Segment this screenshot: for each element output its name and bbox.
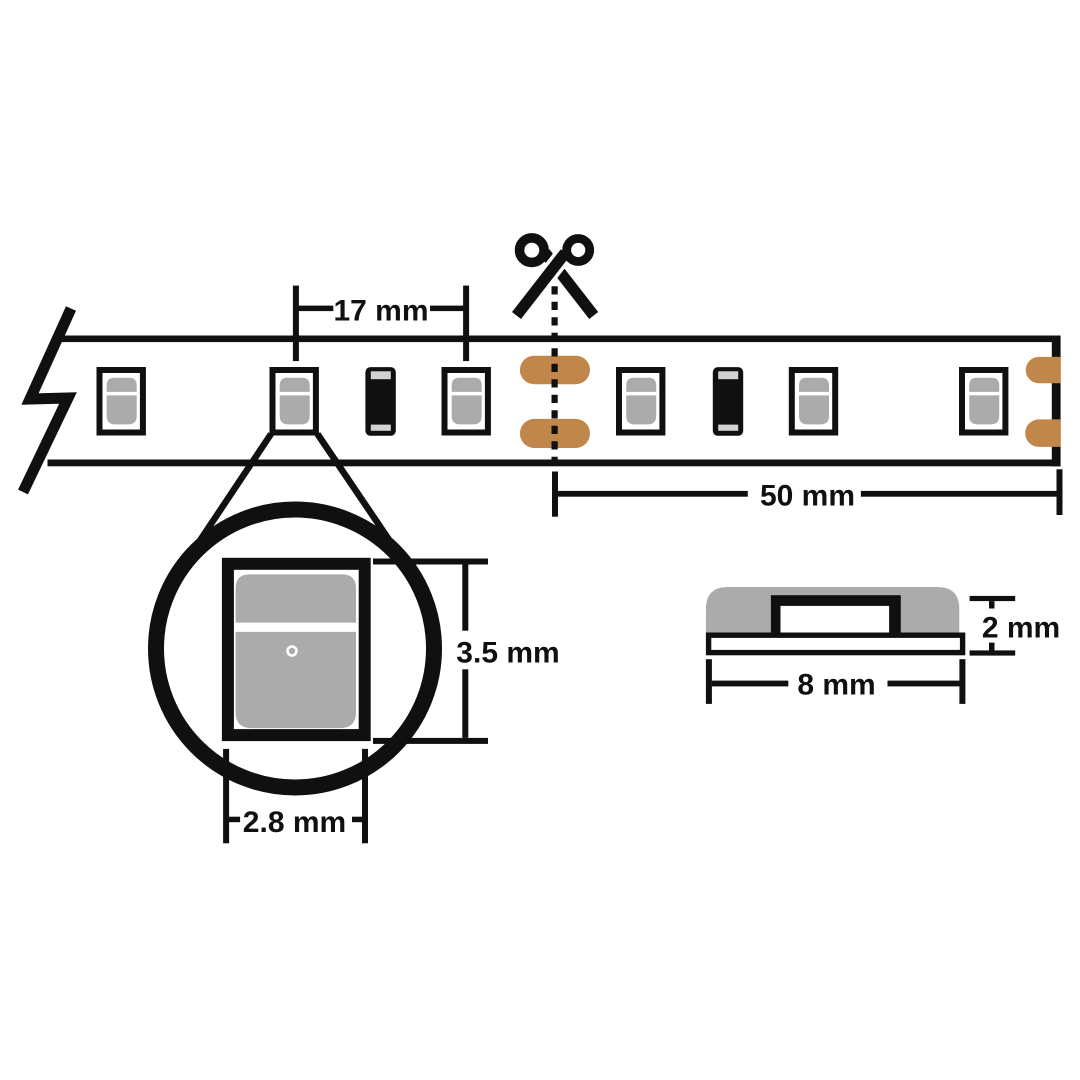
svg-text:2.8 mm: 2.8 mm [243, 806, 346, 839]
svg-text:50 mm: 50 mm [760, 480, 855, 513]
svg-text:8 mm: 8 mm [797, 669, 875, 702]
svg-text:3.5 mm: 3.5 mm [456, 637, 559, 670]
svg-text:17 mm: 17 mm [333, 295, 428, 328]
svg-text:2 mm: 2 mm [982, 612, 1060, 645]
